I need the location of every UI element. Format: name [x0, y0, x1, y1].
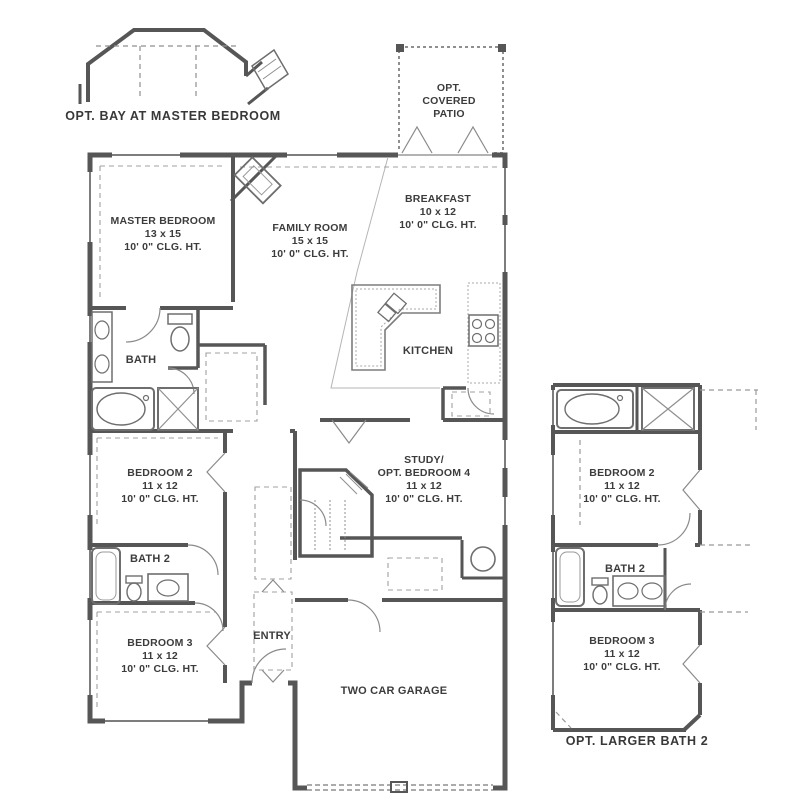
room-clg: 10' 0" CLG. HT. — [583, 661, 661, 674]
patio-line3: PATIO — [422, 108, 475, 121]
inset-label-bath-2: BATH 2 — [605, 563, 645, 576]
kitchen-fixtures — [352, 283, 500, 383]
room-dims: 11 x 12 — [378, 480, 471, 493]
opt-larger-bath-caption: OPT. LARGER BATH 2 — [566, 735, 709, 748]
room-name: BREAKFAST — [399, 193, 477, 206]
room-name: STUDY/ — [378, 454, 471, 467]
room-name: BEDROOM 2 — [121, 467, 199, 480]
inset-label-bedroom-3: BEDROOM 3 11 x 12 10' 0" CLG. HT. — [583, 635, 661, 674]
room-dims: 11 x 12 — [583, 480, 661, 493]
room-clg: 10' 0" CLG. HT. — [378, 493, 471, 506]
room-label-bedroom-3: BEDROOM 3 11 x 12 10' 0" CLG. HT. — [121, 637, 199, 676]
opt-bay-caption: OPT. BAY AT MASTER BEDROOM — [65, 110, 281, 123]
room-clg: 10' 0" CLG. HT. — [583, 493, 661, 506]
room-name: MASTER BEDROOM — [111, 215, 216, 228]
option-larger-bath-detail — [553, 385, 758, 730]
patio-line2: COVERED — [422, 95, 475, 108]
room-clg: 10' 0" CLG. HT. — [111, 241, 216, 254]
room-label-entry: ENTRY — [253, 630, 291, 643]
kitchen-wall-counter — [468, 283, 500, 383]
inset-toilet-icon — [592, 578, 608, 604]
vanity-sink-icon — [148, 574, 188, 601]
room-dims: 11 x 12 — [583, 648, 661, 661]
room-label-study: STUDY/ OPT. BEDROOM 4 11 x 12 10' 0" CLG… — [378, 454, 471, 506]
stove-icon — [469, 315, 498, 346]
room-label-master-bedroom: MASTER BEDROOM 13 x 15 10' 0" CLG. HT. — [111, 215, 216, 254]
room-label-kitchen: KITCHEN — [403, 345, 453, 358]
room-clg: 10' 0" CLG. HT. — [121, 663, 199, 676]
inset-double-vanity-icon — [613, 576, 665, 606]
water-heater-icon — [471, 547, 495, 571]
room-name: BEDROOM 2 — [583, 467, 661, 480]
vanity-sink-icon — [92, 312, 112, 382]
inset-bath2-tub-icon — [556, 548, 584, 606]
master-bath-fixtures — [92, 312, 198, 430]
room-label-garage: TWO CAR GARAGE — [341, 685, 448, 698]
room-label-bath: BATH — [126, 354, 157, 367]
shower-icon — [158, 388, 198, 430]
tub-icon — [92, 548, 120, 604]
room-dims: 11 x 12 — [121, 650, 199, 663]
room-name2: OPT. BEDROOM 4 — [378, 467, 471, 480]
kitchen-sink-icon — [378, 293, 406, 322]
room-clg: 10' 0" CLG. HT. — [271, 248, 349, 261]
patio-line1: OPT. — [422, 82, 475, 95]
room-clg: 10' 0" CLG. HT. — [121, 493, 199, 506]
bay-corner-cabinet-icon — [252, 50, 288, 90]
room-clg: 10' 0" CLG. HT. — [399, 219, 477, 232]
toilet-icon — [168, 314, 192, 351]
room-dims: 13 x 15 — [111, 228, 216, 241]
room-label-bath-2: BATH 2 — [130, 553, 170, 566]
option-bay-detail — [80, 30, 288, 104]
room-name: BEDROOM 3 — [121, 637, 199, 650]
room-label-bedroom-2: BEDROOM 2 11 x 12 10' 0" CLG. HT. — [121, 467, 199, 506]
floor-plan-page: OPT. BAY AT MASTER BEDROOM OPT. COVERED … — [0, 0, 810, 810]
inset-tub-icon — [557, 390, 633, 428]
room-label-family-room: FAMILY ROOM 15 x 15 10' 0" CLG. HT. — [271, 222, 349, 261]
fireplace-icon — [235, 157, 281, 203]
room-label-breakfast: BREAKFAST 10 x 12 10' 0" CLG. HT. — [399, 193, 477, 232]
room-dims: 15 x 15 — [271, 235, 349, 248]
room-dims: 11 x 12 — [121, 480, 199, 493]
room-name: FAMILY ROOM — [271, 222, 349, 235]
tub-icon — [92, 388, 154, 430]
inset-label-bedroom-2: BEDROOM 2 11 x 12 10' 0" CLG. HT. — [583, 467, 661, 506]
garage-door — [307, 782, 493, 792]
opt-patio-label: OPT. COVERED PATIO — [422, 82, 475, 121]
inset-shower-icon — [642, 388, 694, 430]
room-dims: 10 x 12 — [399, 206, 477, 219]
toilet-icon — [126, 576, 142, 601]
room-name: BEDROOM 3 — [583, 635, 661, 648]
